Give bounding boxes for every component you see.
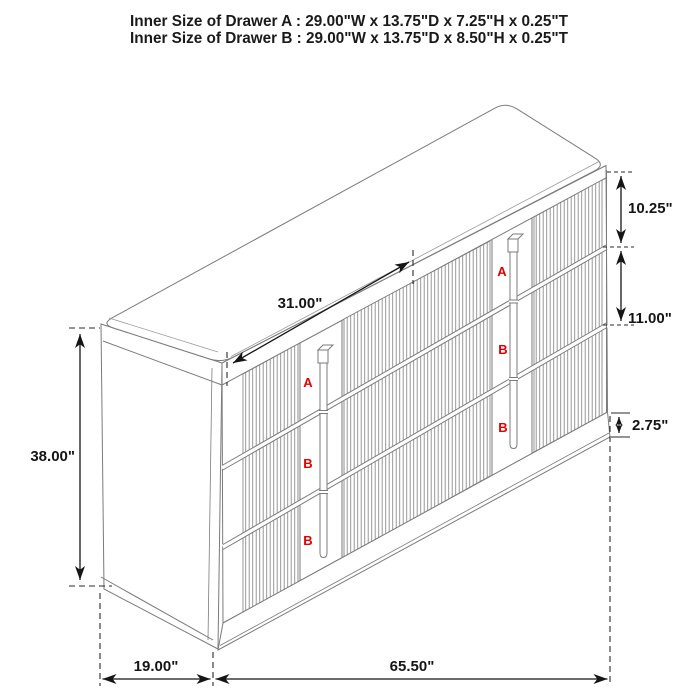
side-panel <box>101 324 222 649</box>
dim-drawer-heights: 10.25" 11.00" <box>603 172 673 327</box>
dim-drawer-b-height-label: 11.00" <box>628 310 672 327</box>
dim-top-section-width-label: 31.00" <box>278 295 323 312</box>
diagram-canvas: Inner Size of Drawer A : 29.00"W x 13.75… <box>0 0 700 700</box>
dim-depth-label: 19.00" <box>134 658 179 675</box>
left-drawer-b1-label: B <box>303 456 312 471</box>
dim-overall-height: 38.00" <box>30 328 112 586</box>
dim-overall-height-label: 38.00" <box>30 448 75 465</box>
right-drawer-a-label: A <box>497 264 507 279</box>
fluted-panel-right <box>534 180 602 452</box>
dim-base-height-label: 2.75" <box>632 417 668 434</box>
right-drawer-b1-label: B <box>498 342 507 357</box>
diagram-title: Inner Size of Drawer A : 29.00"W x 13.75… <box>130 13 569 47</box>
left-drawer-b2-label: B <box>303 533 312 548</box>
fluted-panel-left <box>243 344 298 612</box>
dim-width-label: 65.50" <box>390 658 435 675</box>
drawer-b-inner-size-title: Inner Size of Drawer B : 29.00"W x 13.75… <box>130 30 569 47</box>
dim-drawer-a-height-label: 10.25" <box>628 200 673 217</box>
right-drawer-b2-label: B <box>498 420 507 435</box>
drawer-a-inner-size-title: Inner Size of Drawer A : 29.00"W x 13.75… <box>130 13 569 30</box>
dim-base-height: 2.75" <box>610 413 668 686</box>
dimension-diagram-page: Inner Size of Drawer A : 29.00"W x 13.75… <box>0 0 700 700</box>
sideboard-drawing <box>101 105 610 650</box>
left-drawer-a-label: A <box>303 375 313 390</box>
